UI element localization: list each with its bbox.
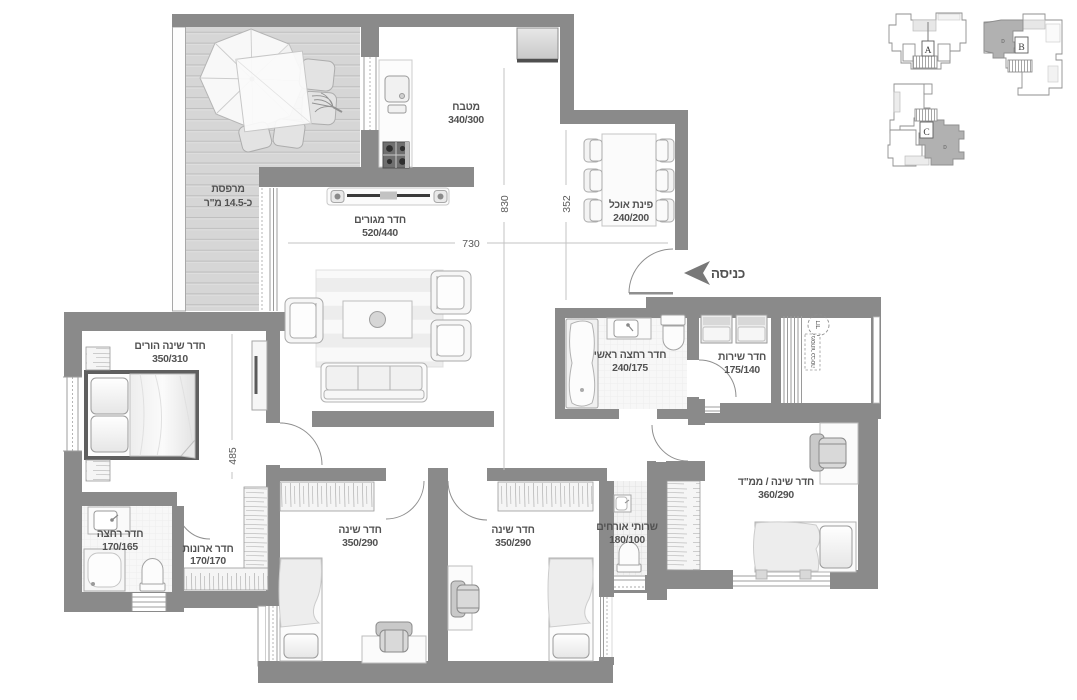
svg-text:מרפסת: מרפסת (211, 184, 244, 195)
svg-text:שרותי אורחים: שרותי אורחים (596, 522, 658, 533)
svg-text:פינת אוכל: פינת אוכל (609, 199, 654, 211)
svg-text:240/175: 240/175 (612, 363, 648, 374)
svg-text:חדר רחצה ראשי: חדר רחצה ראשי (594, 350, 667, 361)
svg-text:170/170: 170/170 (190, 556, 226, 567)
svg-text:352: 352 (561, 195, 573, 213)
svg-text:180/100: 180/100 (609, 535, 645, 546)
svg-text:350/290: 350/290 (495, 538, 531, 549)
svg-text:כניסה: כניסה (711, 266, 745, 281)
svg-text:חדר שינה הורים: חדר שינה הורים (134, 341, 205, 352)
svg-text:חדר מגורים: חדר מגורים (354, 215, 406, 226)
svg-text:340/300: 340/300 (448, 115, 484, 126)
svg-text:כ-14.5 מ"ר: כ-14.5 מ"ר (204, 198, 253, 209)
svg-text:485: 485 (227, 447, 239, 465)
svg-text:D: D (943, 145, 947, 151)
svg-text:360/290: 360/290 (758, 490, 794, 501)
svg-text:A: A (925, 46, 932, 56)
svg-text:מטבח: מטבח (452, 102, 480, 113)
svg-text:חדר שינה: חדר שינה (338, 525, 381, 536)
svg-text:170/165: 170/165 (102, 542, 138, 553)
svg-text:350/310: 350/310 (152, 354, 188, 365)
svg-text:240/200: 240/200 (613, 213, 649, 224)
svg-text:175/140: 175/140 (724, 365, 760, 376)
svg-text:D: D (1001, 39, 1005, 45)
svg-text:B: B (1018, 43, 1024, 53)
svg-text:מסתור כביסה: מסתור כביסה (811, 336, 817, 368)
svg-text:דוד: דוד (815, 320, 822, 329)
svg-text:חדר רחצה: חדר רחצה (97, 529, 144, 540)
svg-text:520/440: 520/440 (362, 228, 398, 239)
svg-text:חדר שינה: חדר שינה (491, 525, 534, 536)
svg-text:C: C (923, 128, 929, 138)
svg-text:830: 830 (499, 195, 511, 213)
svg-text:חדר שינה / ממ"ד: חדר שינה / ממ"ד (738, 477, 814, 488)
svg-text:730: 730 (462, 238, 480, 250)
svg-text:חדר שירות: חדר שירות (718, 352, 766, 363)
svg-text:350/290: 350/290 (342, 538, 378, 549)
svg-text:חדר ארונות: חדר ארונות (183, 544, 234, 555)
